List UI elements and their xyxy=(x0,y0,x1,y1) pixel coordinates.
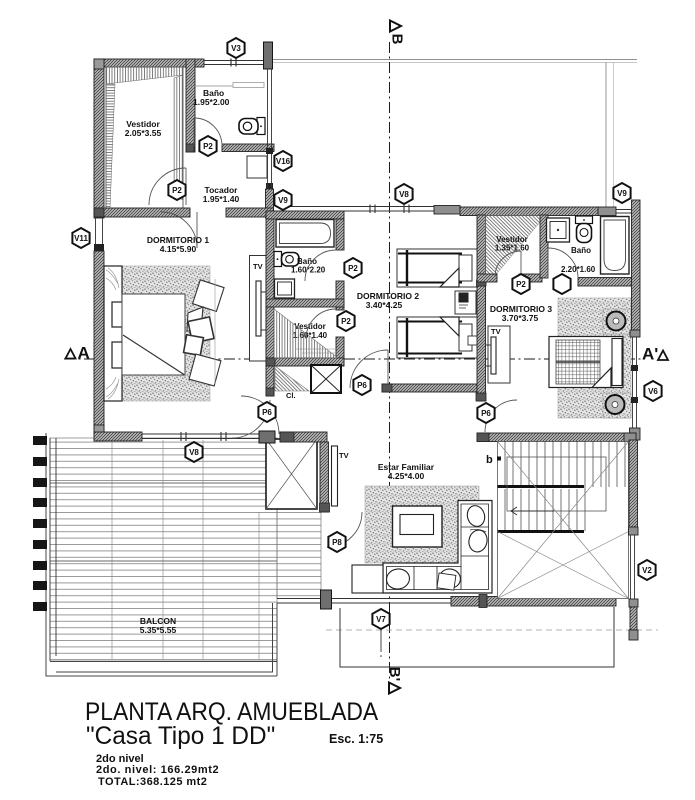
svg-text:TOTAL:368.125 mt2: TOTAL:368.125 mt2 xyxy=(98,776,207,788)
svg-text:A': A' xyxy=(642,345,658,364)
svg-text:2do. nivel: 166.29mt2: 2do. nivel: 166.29mt2 xyxy=(96,764,219,776)
svg-text:A: A xyxy=(78,344,90,363)
svg-text:1.95*1.40: 1.95*1.40 xyxy=(203,194,240,204)
svg-text:1.35*1.60: 1.35*1.60 xyxy=(495,244,530,253)
svg-text:4.15*5.90: 4.15*5.90 xyxy=(160,244,197,254)
svg-text:V2: V2 xyxy=(642,566,652,575)
svg-text:Cl.: Cl. xyxy=(286,391,296,400)
svg-text:V16: V16 xyxy=(276,157,291,166)
svg-text:Baño: Baño xyxy=(571,246,591,255)
svg-text:2.05*3.55: 2.05*3.55 xyxy=(125,128,162,138)
svg-text:TV: TV xyxy=(339,451,349,460)
svg-text:P2: P2 xyxy=(516,280,526,289)
svg-text:V9: V9 xyxy=(617,189,627,198)
svg-text:V8: V8 xyxy=(189,448,199,457)
svg-text:P6: P6 xyxy=(262,408,272,417)
svg-text:3.40*4.25: 3.40*4.25 xyxy=(366,300,403,310)
svg-text:TV: TV xyxy=(491,327,501,336)
svg-text:P6: P6 xyxy=(481,409,491,418)
svg-text:B': B' xyxy=(386,667,403,681)
svg-text:V6: V6 xyxy=(648,387,658,396)
svg-text:P2: P2 xyxy=(172,186,182,195)
svg-text:5.35*5.55: 5.35*5.55 xyxy=(140,625,177,635)
svg-text:Esc. 1:75: Esc. 1:75 xyxy=(329,732,383,746)
svg-text:P8: P8 xyxy=(332,538,342,547)
svg-text:b: b xyxy=(486,454,493,466)
svg-text:V9: V9 xyxy=(278,196,288,205)
svg-text:P6: P6 xyxy=(357,381,367,390)
svg-text:TV: TV xyxy=(253,262,263,271)
svg-text:1.95*2.00: 1.95*2.00 xyxy=(193,97,230,107)
svg-text:4.25*4.00: 4.25*4.00 xyxy=(388,471,425,481)
svg-text:V8: V8 xyxy=(399,190,409,199)
svg-text:P2: P2 xyxy=(341,317,351,326)
svg-text:V11: V11 xyxy=(74,234,88,243)
svg-text:P2: P2 xyxy=(348,264,358,273)
svg-text:V7: V7 xyxy=(376,615,386,624)
svg-text:B: B xyxy=(389,34,406,45)
svg-text:V3: V3 xyxy=(231,44,241,53)
svg-text:"Casa Tipo 1 DD": "Casa Tipo 1 DD" xyxy=(86,723,275,750)
svg-text:2.20*1.60: 2.20*1.60 xyxy=(561,265,596,274)
svg-text:3.70*3.75: 3.70*3.75 xyxy=(502,313,539,323)
svg-text:P2: P2 xyxy=(203,142,213,151)
